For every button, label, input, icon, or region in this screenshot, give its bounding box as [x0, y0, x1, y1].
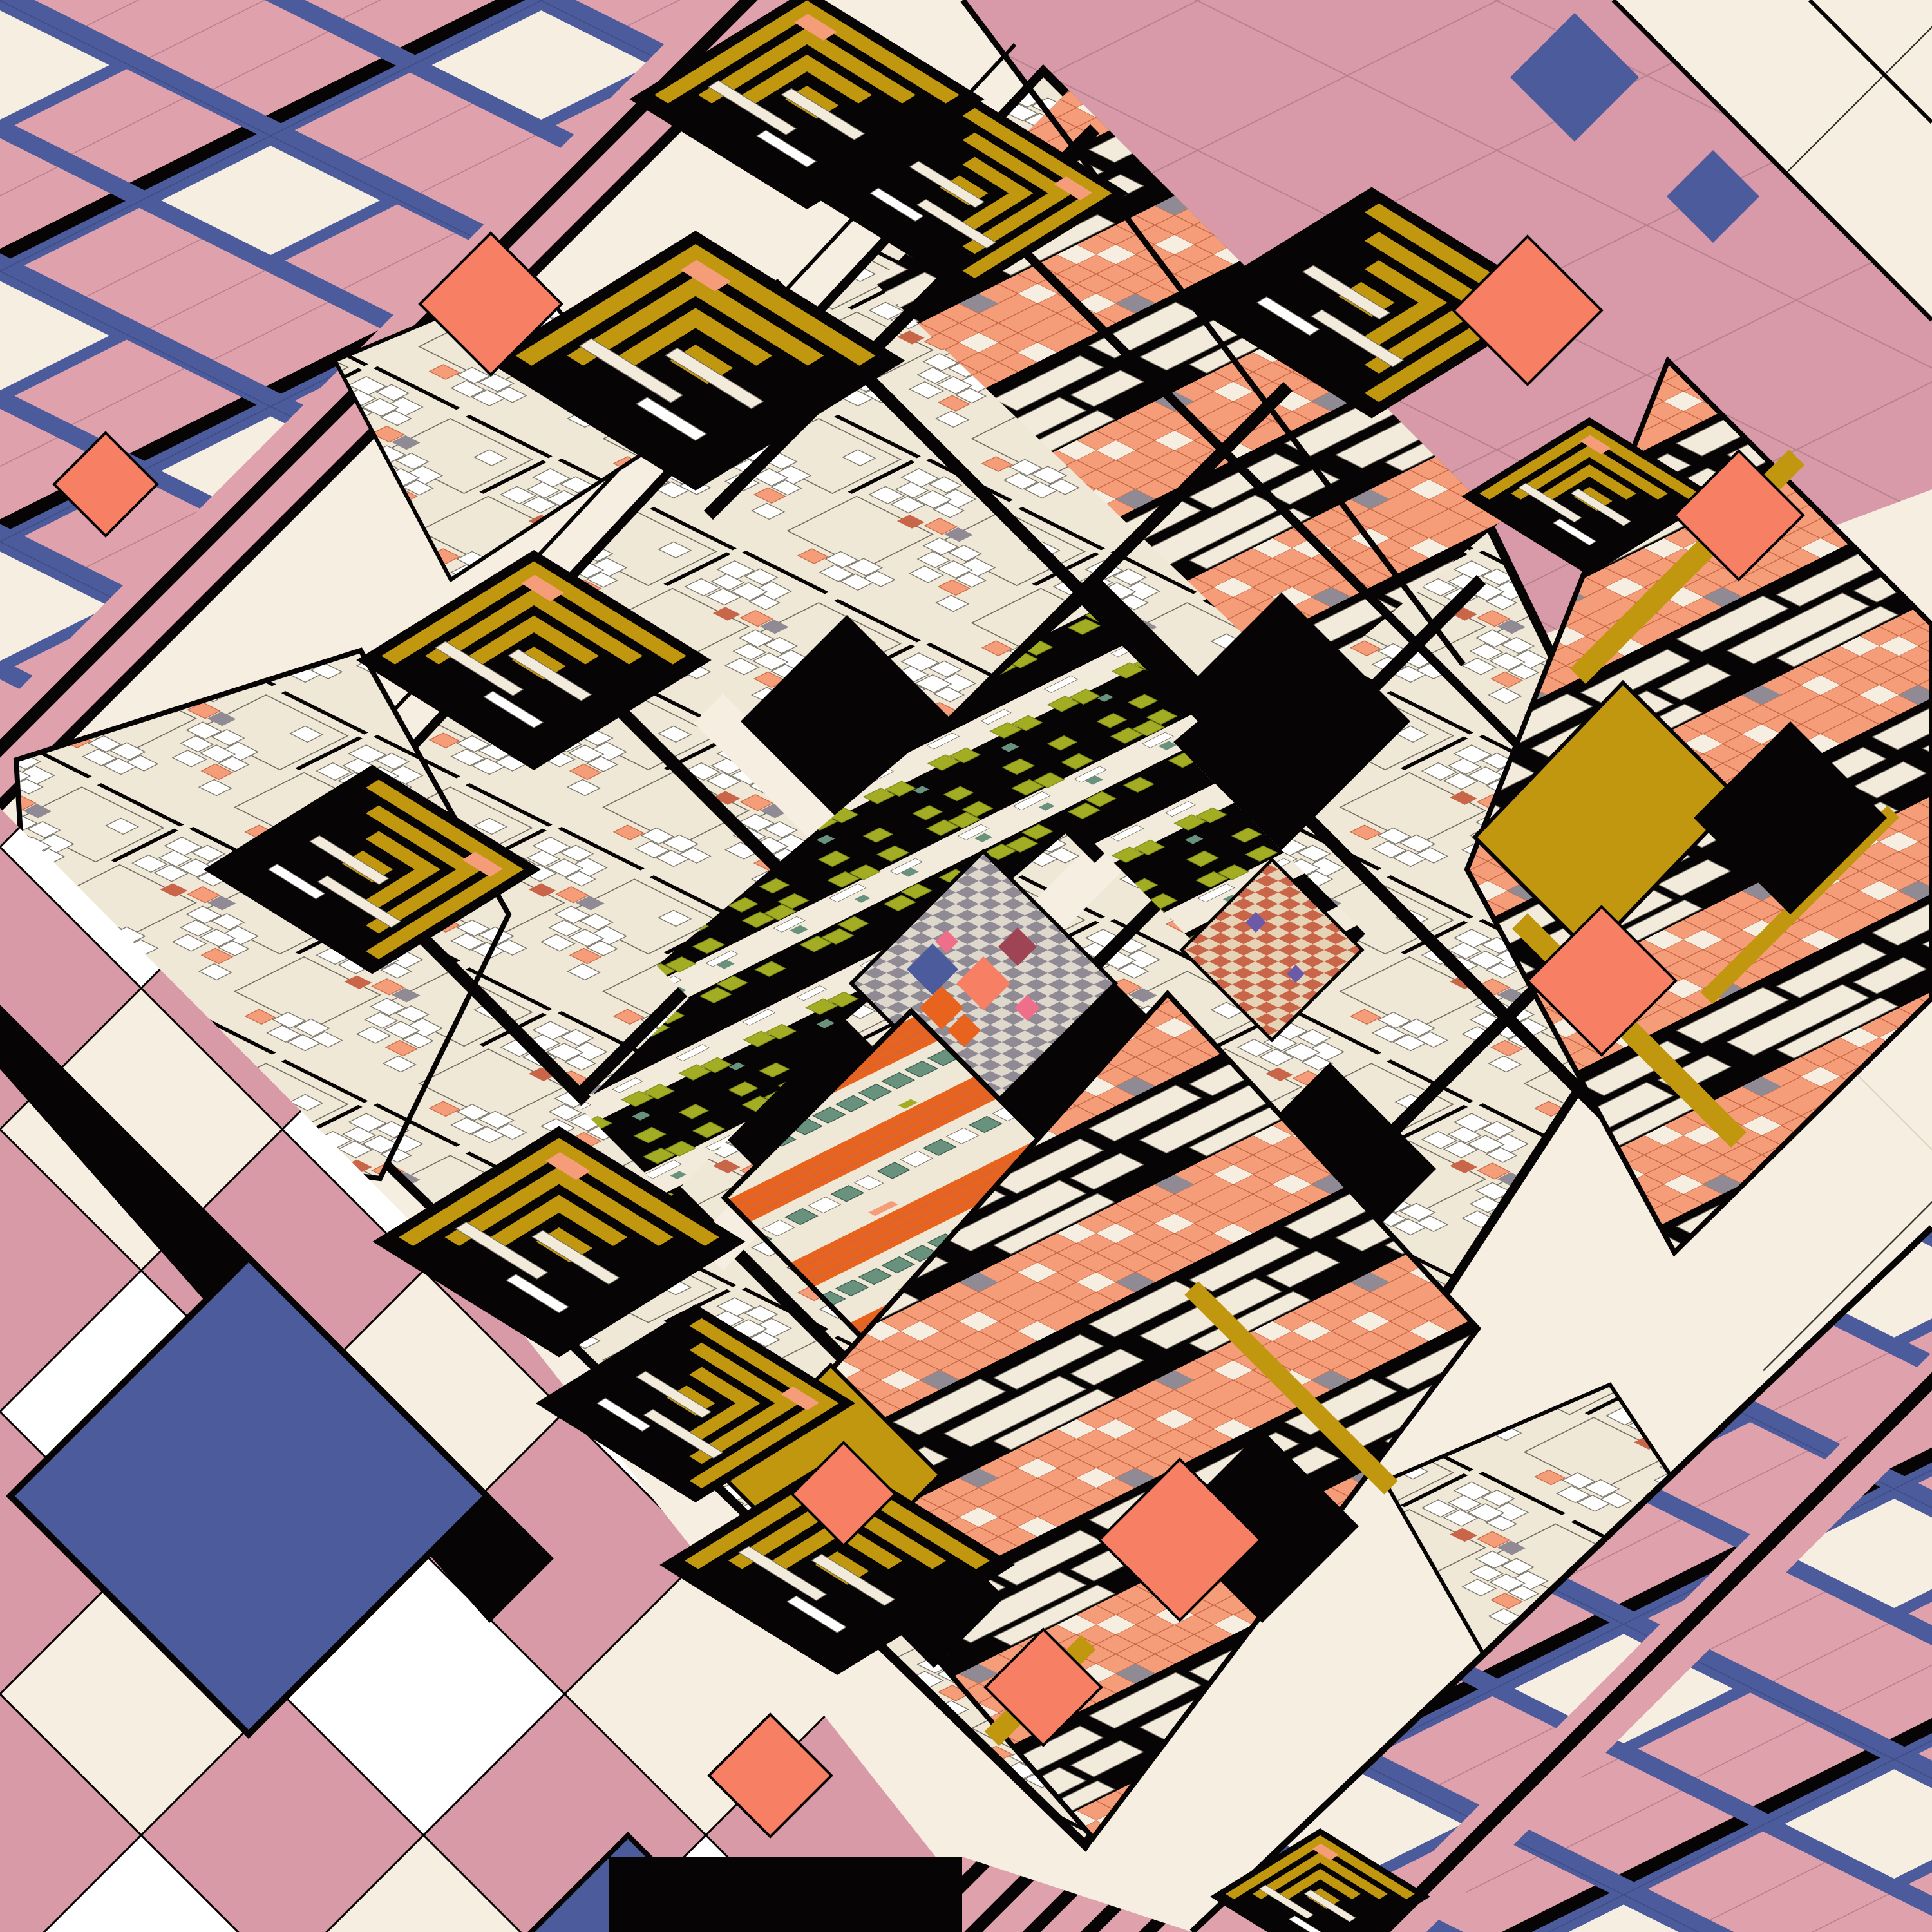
scene-layers	[0, 0, 1932, 1932]
city-canvas	[0, 0, 1932, 1932]
isometric-city-artwork	[0, 0, 1932, 1932]
strip-black-bottom	[609, 1857, 962, 1932]
